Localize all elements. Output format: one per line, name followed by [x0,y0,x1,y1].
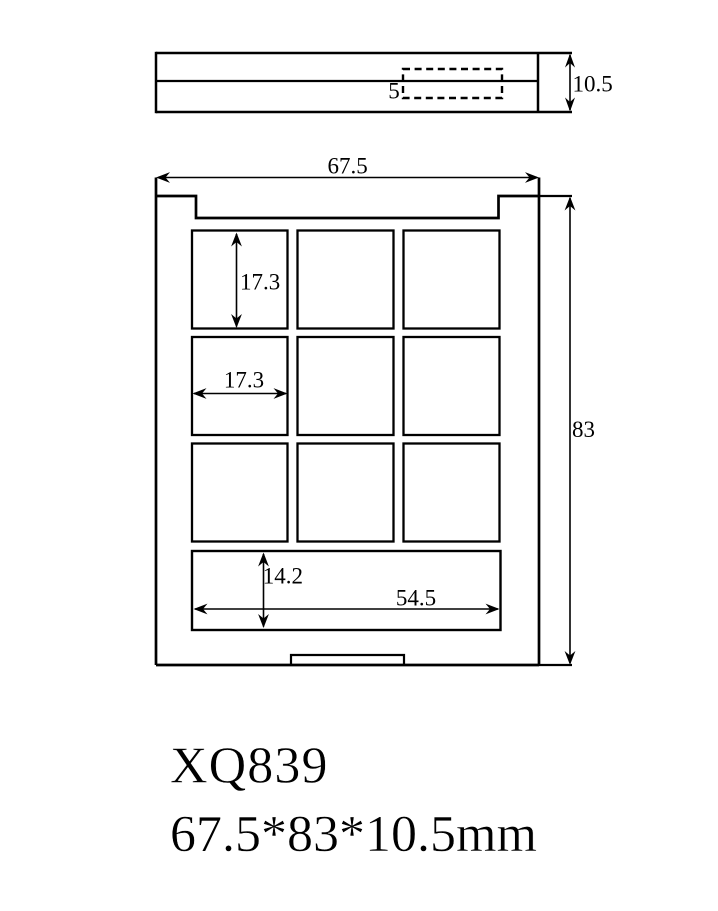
svg-text:83: 83 [572,417,595,442]
svg-text:5: 5 [388,78,400,103]
svg-text:17.3: 17.3 [240,270,280,295]
svg-text:14.2: 14.2 [263,563,303,588]
svg-text:67.5*83*10.5mm: 67.5*83*10.5mm [170,806,537,863]
svg-text:XQ839: XQ839 [170,738,329,795]
svg-text:54.5: 54.5 [396,585,436,610]
svg-text:17.3: 17.3 [224,368,264,393]
svg-text:10.5: 10.5 [573,72,613,97]
svg-text:67.5: 67.5 [327,154,367,179]
